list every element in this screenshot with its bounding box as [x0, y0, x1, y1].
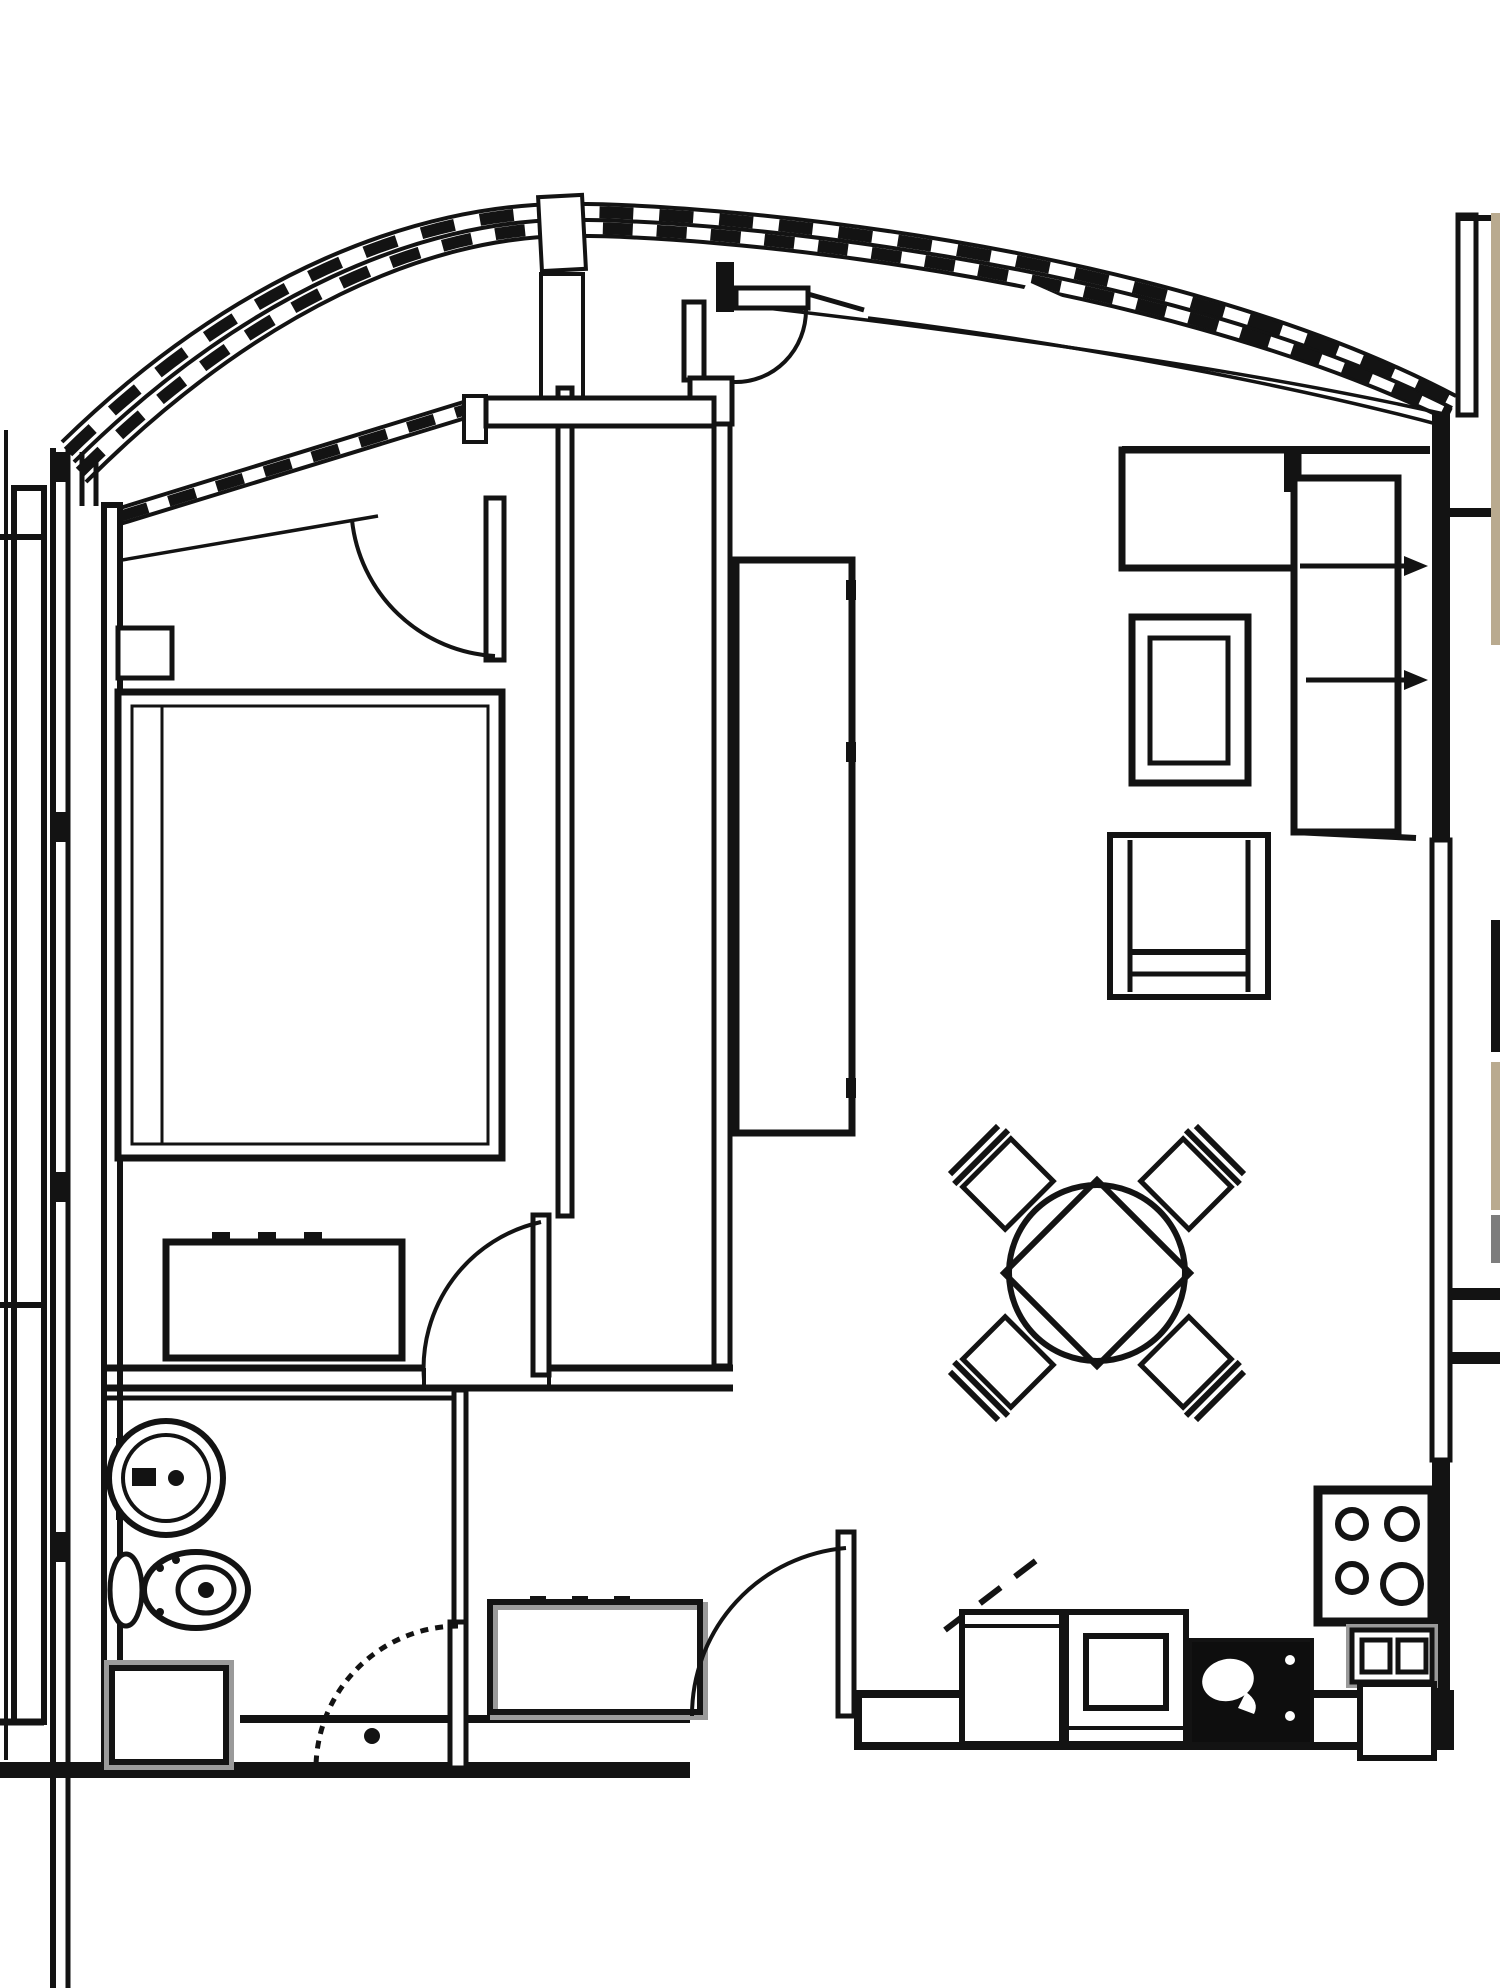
- door-swing-arc: [424, 1222, 541, 1380]
- window-line-2: [120, 416, 472, 524]
- hallway: [490, 1532, 854, 1716]
- bedroom-facade: [120, 396, 504, 660]
- washing-machine: [108, 1664, 230, 1766]
- cabinet-handle: [846, 580, 856, 600]
- hall-closet: [490, 1596, 704, 1716]
- door-leaf: [486, 498, 504, 660]
- bottom-wall-outer-band: [0, 1762, 690, 1778]
- mullion-dash-overlay: [80, 228, 1450, 472]
- armchair: [1110, 835, 1268, 997]
- cabinet-handle: [846, 742, 856, 762]
- mullion-dash-overlay: [121, 408, 471, 516]
- right-wall-upper-solid: [1432, 412, 1450, 840]
- bedroom-bottom-wall: [104, 1368, 733, 1398]
- door-swing-arc: [734, 310, 806, 382]
- sofa-seat-horizontal: [1122, 450, 1298, 568]
- neighbor-sliver-tan: [1491, 213, 1500, 645]
- closet-tick: [614, 1596, 630, 1605]
- closet-tick: [530, 1596, 546, 1605]
- door-leaf: [533, 1215, 549, 1375]
- bedroom: [118, 628, 549, 1380]
- central-wall: [714, 424, 730, 1366]
- neighbor-sliver-gray: [1491, 1215, 1500, 1263]
- cooktop: [1318, 1490, 1432, 1622]
- dining-set: [947, 1123, 1247, 1423]
- nightstand: [118, 628, 172, 678]
- balcony-parapet-bar: [14, 488, 44, 1722]
- neighbor-stub: [1450, 1288, 1500, 1300]
- wash-basin: [109, 1421, 223, 1535]
- neighbor-sliver-tan: [1491, 1062, 1500, 1210]
- bedroom-door: [424, 1215, 549, 1380]
- cabinet-handle: [846, 1078, 856, 1098]
- neighbor-wall-slivers: [1491, 213, 1500, 1263]
- floor-plan: [0, 0, 1500, 1988]
- bedroom-right-wall: [558, 388, 572, 1216]
- dresser-tick: [304, 1232, 322, 1242]
- sill-line: [122, 516, 378, 560]
- door-leaf: [450, 1622, 466, 1768]
- dresser-tick: [258, 1232, 276, 1242]
- door-jamb-post: [464, 396, 486, 442]
- basin-tap: [132, 1468, 156, 1486]
- door-swing-arc: [692, 1548, 846, 1716]
- bathroom-door: [316, 1622, 466, 1768]
- fridge-cabinet: [1360, 1684, 1434, 1758]
- kitchen-sink-unit: [1190, 1640, 1312, 1744]
- closet-tick: [572, 1596, 588, 1605]
- arrowhead: [1404, 556, 1428, 576]
- window-break-post: [538, 195, 586, 271]
- door-swing-arc-dashed: [316, 1626, 458, 1766]
- door-handle-dot: [364, 1728, 380, 1744]
- basin-drain: [168, 1470, 184, 1486]
- toilet: [110, 1552, 248, 1628]
- coffee-table: [1132, 617, 1248, 783]
- entry-door: [692, 1532, 854, 1716]
- living-balcony-door: [734, 288, 864, 382]
- oven-unit: [1066, 1612, 1186, 1744]
- door-hinge-post: [716, 262, 734, 312]
- neighbor-sliver-black: [1491, 920, 1500, 1052]
- kitchen: [945, 1490, 1434, 1758]
- door-jamb-wall: [684, 302, 704, 380]
- dresser-tick: [212, 1232, 230, 1242]
- door-swing-arc: [352, 520, 495, 656]
- fixed-panel-line: [808, 294, 864, 310]
- sofa-seat-vertical: [1294, 478, 1398, 832]
- bed: [118, 692, 502, 1158]
- top-curved-window-band: [62, 195, 1456, 482]
- bedroom-top-wall-stub: [486, 398, 714, 426]
- dining-table-round: [1009, 1185, 1185, 1361]
- kitchen-counter: [962, 1612, 1062, 1744]
- neighbor-stub: [1450, 1352, 1500, 1364]
- toilet-tank: [110, 1554, 142, 1626]
- bedroom-balcony-door: [352, 498, 504, 660]
- living-room: [947, 450, 1430, 1423]
- two-compartment-unit: [1350, 1628, 1434, 1684]
- window-line-1: [120, 400, 470, 508]
- dresser: [166, 1232, 402, 1358]
- tall-cabinet: [736, 560, 856, 1133]
- bathroom-right-wall: [454, 1390, 466, 1622]
- arrowhead: [1404, 670, 1428, 690]
- door-leaf: [736, 288, 808, 308]
- right-wall-top-segment: [1458, 215, 1476, 415]
- door-leaf: [838, 1532, 854, 1716]
- right-wall-middle: [1432, 840, 1450, 1460]
